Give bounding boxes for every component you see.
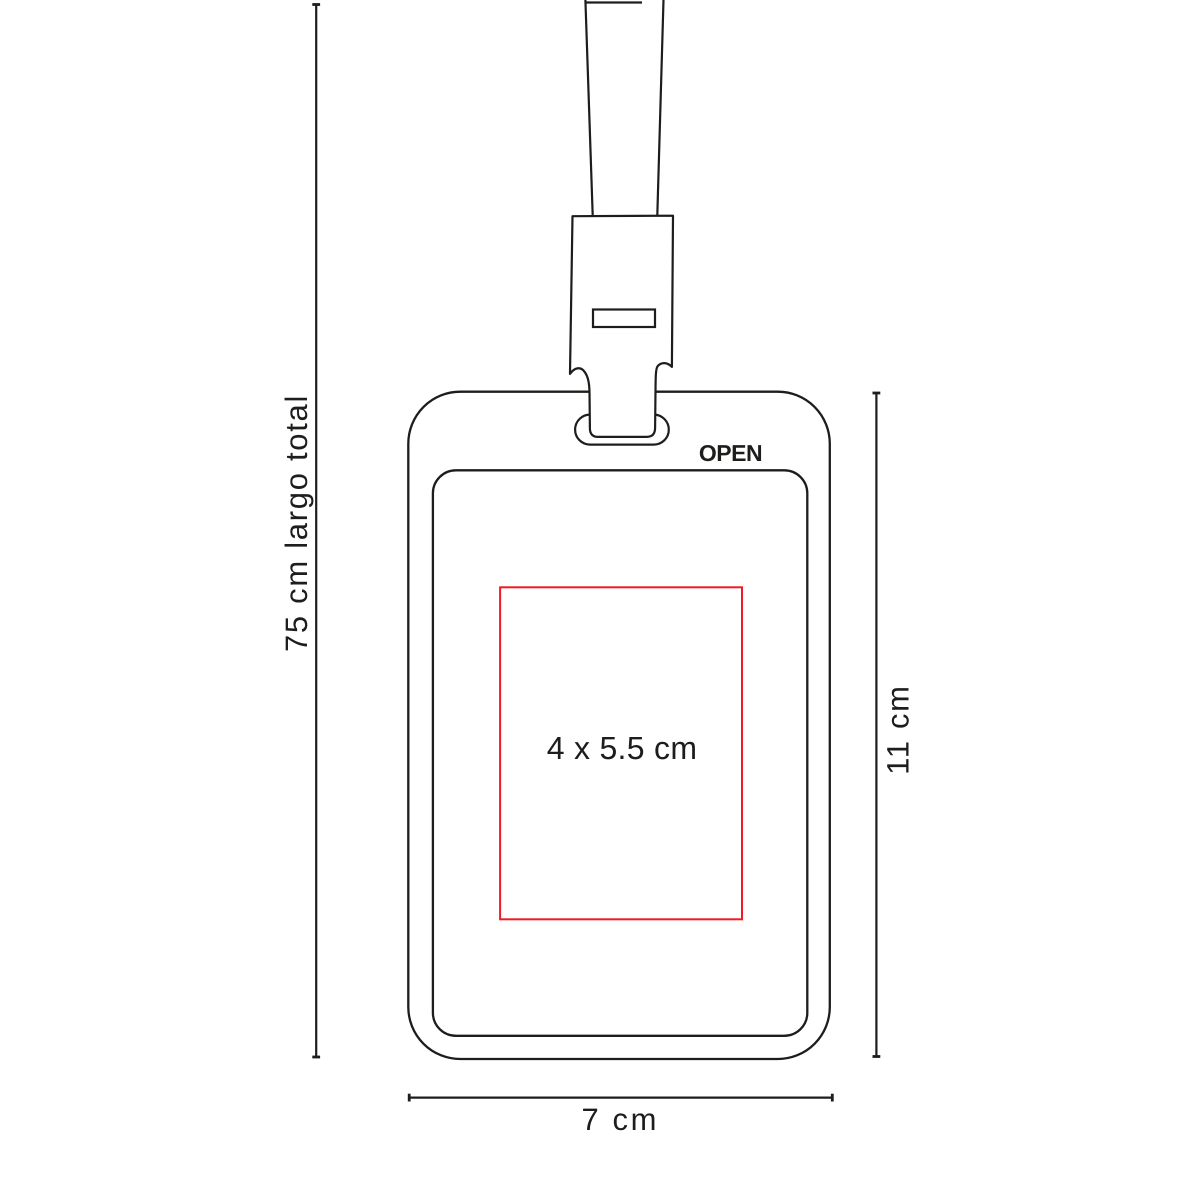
svg-text:7 cm: 7 cm bbox=[582, 1102, 660, 1137]
svg-text:OPEN: OPEN bbox=[699, 440, 762, 466]
svg-text:4 x 5.5 cm: 4 x 5.5 cm bbox=[547, 730, 698, 766]
svg-text:75 cm largo total: 75 cm largo total bbox=[279, 394, 314, 652]
svg-text:11 cm: 11 cm bbox=[881, 684, 916, 775]
